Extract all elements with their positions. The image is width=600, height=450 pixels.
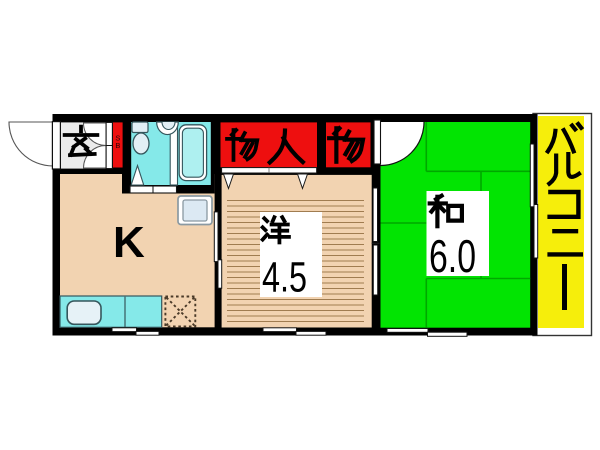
svg-text:K: K	[113, 218, 145, 267]
svg-text:B: B	[115, 141, 120, 150]
svg-text:6.0: 6.0	[429, 230, 476, 282]
svg-text:4.5: 4.5	[262, 254, 307, 302]
